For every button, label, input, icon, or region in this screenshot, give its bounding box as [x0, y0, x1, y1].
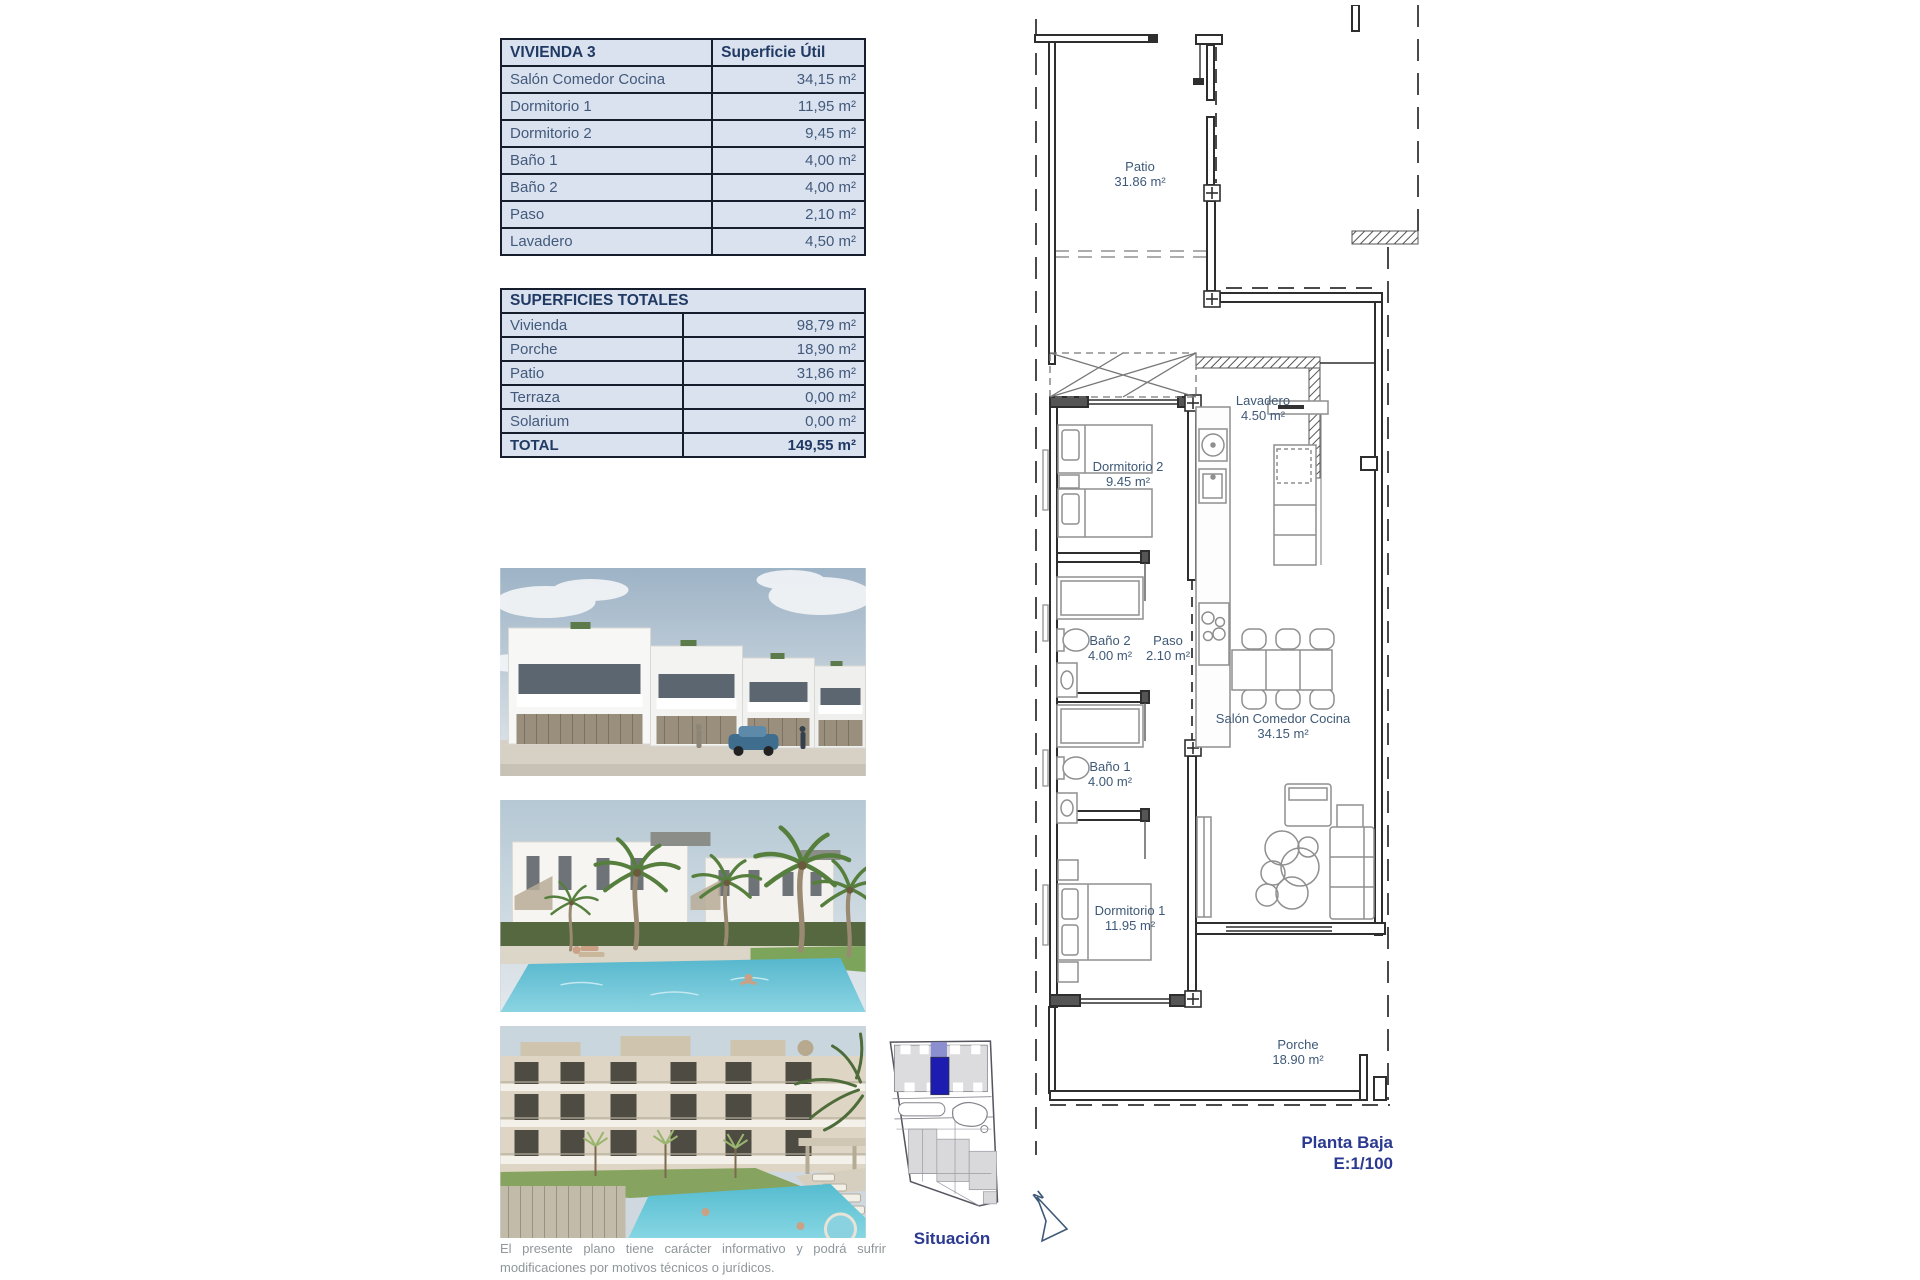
- room-area-paso: 2.10 m²: [1146, 648, 1191, 663]
- row-value: 18,90 m²: [683, 337, 865, 361]
- row-label: Vivienda: [501, 313, 683, 337]
- table-row: Baño 24,00 m²: [501, 174, 865, 201]
- row-label: Solarium: [501, 409, 683, 433]
- table-row: Paso2,10 m²: [501, 201, 865, 228]
- north-arrow-icon: N: [1030, 1187, 1067, 1241]
- plant-icon: [1256, 831, 1319, 909]
- table-row: Dormitorio 29,45 m²: [501, 120, 865, 147]
- row-label: Dormitorio 2: [501, 120, 712, 147]
- room-label-dormitorio1: Dormitorio 1: [1095, 903, 1166, 918]
- total-value: 149,55 m²: [683, 433, 865, 457]
- table-header-row: SUPERFICIES TOTALES: [501, 289, 865, 313]
- highlighted-unit: [931, 1057, 949, 1094]
- row-value: 2,10 m²: [712, 201, 865, 228]
- area-tables-column: VIVIENDA 3 Superficie Útil Salón Comedor…: [500, 38, 866, 458]
- road: [501, 764, 866, 776]
- row-value: 9,45 m²: [712, 120, 865, 147]
- situacion-block: Situación: [886, 1032, 1018, 1249]
- row-label: Porche: [501, 337, 683, 361]
- pool: [501, 958, 866, 1012]
- room-area-salon: 34.15 m²: [1257, 726, 1309, 741]
- table-row: Patio31,86 m²: [501, 361, 865, 385]
- table-row: Vivienda98,79 m²: [501, 313, 865, 337]
- row-label: Patio: [501, 361, 683, 385]
- room-label-dormitorio2: Dormitorio 2: [1093, 459, 1164, 474]
- townhouses-render-image: [500, 568, 866, 776]
- row-value: 4,00 m²: [712, 174, 865, 201]
- table-row: Baño 14,00 m²: [501, 147, 865, 174]
- superficie-util-header: Superficie Útil: [712, 39, 865, 66]
- totales-table-title: SUPERFICIES TOTALES: [501, 289, 865, 313]
- photo-apartments-pool-render: [500, 1026, 866, 1238]
- apartments-pool-render-image: [500, 1026, 866, 1238]
- row-value: 31,86 m²: [683, 361, 865, 385]
- highlighted-unit-upper: [931, 1042, 947, 1057]
- room-label-bano2: Baño 2: [1089, 633, 1130, 648]
- pool-garden-render-image: [500, 800, 866, 1012]
- vivienda-table-title: VIVIENDA 3: [501, 39, 712, 66]
- pergola-xbox: [1050, 353, 1196, 397]
- room-area-dormitorio2: 9.45 m²: [1106, 474, 1151, 489]
- patio-dashed-divider: [1055, 251, 1206, 257]
- row-value: 11,95 m²: [712, 93, 865, 120]
- top-building-row: [894, 1042, 987, 1095]
- slat-fence: [501, 1186, 626, 1238]
- photo-pool-garden-render: [500, 800, 866, 1012]
- table-row: Terraza0,00 m²: [501, 385, 865, 409]
- vivienda-table: VIVIENDA 3 Superficie Útil Salón Comedor…: [500, 38, 866, 256]
- table-header-row: VIVIENDA 3 Superficie Útil: [501, 39, 865, 66]
- row-value: 0,00 m²: [683, 409, 865, 433]
- total-row: TOTAL149,55 m²: [501, 433, 865, 457]
- row-label: Dormitorio 1: [501, 93, 712, 120]
- table-row: Solarium0,00 m²: [501, 409, 865, 433]
- situacion-map: [886, 1032, 1018, 1218]
- floorplan-drawing: Patio 31.86 m² Lavadero 4.50 m² Dormitor…: [1030, 5, 1430, 1275]
- disclaimer-text: El presente plano tiene carácter informa…: [500, 1240, 886, 1278]
- room-label-salon: Salón Comedor Cocina: [1216, 711, 1351, 726]
- room-label-paso: Paso: [1153, 633, 1183, 648]
- row-value: 4,50 m²: [712, 228, 865, 255]
- room-label-patio: Patio: [1125, 159, 1155, 174]
- plan-caption-title: Planta Baja: [1301, 1133, 1393, 1152]
- kitchen-counter-icon: [1196, 407, 1230, 747]
- hedge: [501, 922, 866, 946]
- row-label: Baño 1: [501, 147, 712, 174]
- left-wall-windows: [1043, 450, 1048, 945]
- table-row: Dormitorio 111,95 m²: [501, 93, 865, 120]
- table-row: Porche18,90 m²: [501, 337, 865, 361]
- row-label: Baño 2: [501, 174, 712, 201]
- pergola: [799, 1138, 866, 1146]
- room-area-dormitorio1: 11.95 m²: [1105, 918, 1156, 933]
- room-label-porche: Porche: [1277, 1037, 1318, 1052]
- room-area-bano2: 4.00 m²: [1088, 648, 1133, 663]
- row-label: Salón Comedor Cocina: [501, 66, 712, 93]
- sofa-set-icon: [1197, 784, 1374, 919]
- room-area-patio: 31.86 m²: [1114, 174, 1166, 189]
- room-label-lavadero: Lavadero: [1236, 393, 1290, 408]
- row-value: 34,15 m²: [712, 66, 865, 93]
- row-value: 4,00 m²: [712, 147, 865, 174]
- row-value: 0,00 m²: [683, 385, 865, 409]
- photo-townhouses-render: [500, 568, 866, 776]
- plan-caption-scale: E:1/100: [1333, 1154, 1393, 1173]
- spa-pool: [826, 1214, 856, 1238]
- table-row: Salón Comedor Cocina34,15 m²: [501, 66, 865, 93]
- row-value: 98,79 m²: [683, 313, 865, 337]
- row-label: Paso: [501, 201, 712, 228]
- room-area-bano1: 4.00 m²: [1088, 774, 1133, 789]
- apartment-building: [501, 1056, 866, 1174]
- plan-sheet-page: VIVIENDA 3 Superficie Útil Salón Comedor…: [0, 0, 1920, 1280]
- room-label-bano1: Baño 1: [1089, 759, 1130, 774]
- superficies-totales-table: SUPERFICIES TOTALES Vivienda98,79 m² Por…: [500, 288, 866, 458]
- room-area-lavadero: 4.50 m²: [1241, 408, 1286, 423]
- row-label: Lavadero: [501, 228, 712, 255]
- row-label: Terraza: [501, 385, 683, 409]
- total-label: TOTAL: [501, 433, 683, 457]
- furniture: [1057, 401, 1374, 982]
- room-area-porche: 18.90 m²: [1272, 1052, 1324, 1067]
- situacion-label: Situación: [886, 1229, 1018, 1249]
- table-row: Lavadero4,50 m²: [501, 228, 865, 255]
- dining-table-icon: [1232, 629, 1334, 709]
